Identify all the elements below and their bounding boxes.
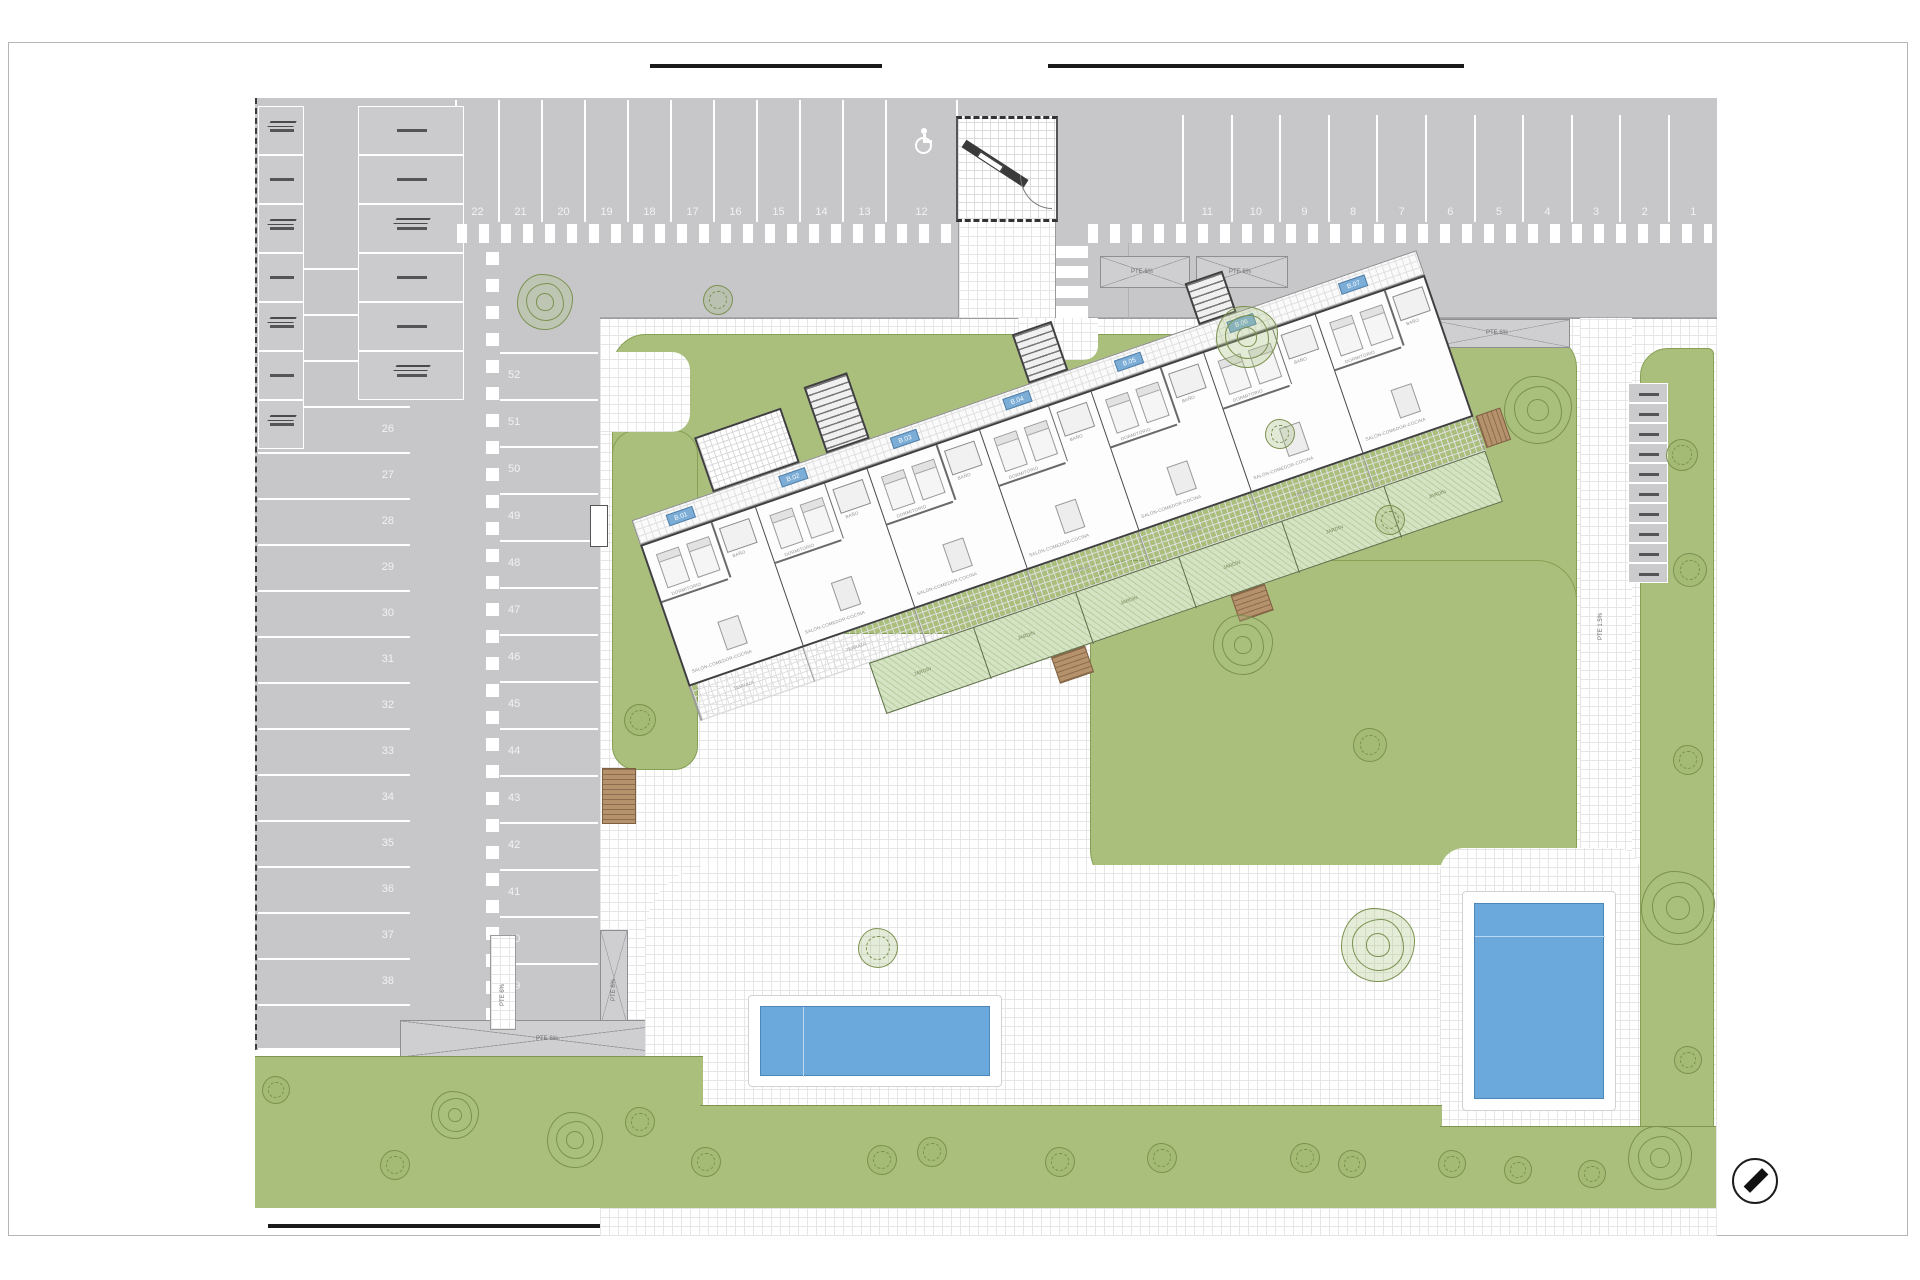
parking-space-number: 43: [508, 792, 520, 804]
bike-rack-icon: [270, 325, 294, 328]
moto-icon: [267, 415, 296, 421]
bike-rack-icon: [270, 423, 294, 426]
parking-space: 21: [498, 100, 541, 222]
bike-rack-icon: [397, 325, 427, 328]
bike-stall-east: [1628, 443, 1668, 463]
parking-space: 30: [258, 590, 410, 636]
bed-icon: [1330, 315, 1364, 357]
bathroom: [719, 518, 758, 553]
bike-rack-icon: [1639, 513, 1659, 516]
parking-space-number: 42: [508, 839, 520, 851]
parking-space: 35: [258, 820, 410, 866]
parking-space: 43: [500, 775, 598, 822]
bathroom: [1168, 363, 1207, 398]
parking-space-number: 50: [508, 463, 520, 475]
bike-stall: [258, 400, 304, 449]
road-marking-dashes: [1088, 224, 1712, 243]
bike-rack-icon: [1639, 413, 1659, 416]
parking-space-number: 21: [500, 206, 541, 218]
wheelchair-icon-part: [915, 137, 932, 154]
moto-icon: [393, 218, 430, 224]
garden-label: JARDÍN: [1428, 489, 1447, 501]
bike-rack-icon: [1639, 393, 1659, 396]
stairs-west: [602, 768, 636, 824]
bush: [1504, 1156, 1532, 1184]
boundary-line: [650, 64, 882, 68]
bush: [1578, 1160, 1606, 1188]
parking-space-number: 17: [672, 206, 713, 218]
parking-space-number: 11: [1184, 206, 1231, 218]
courtyard-door: [590, 505, 608, 547]
bed-icon: [799, 497, 833, 539]
moto-icon: [393, 365, 430, 371]
parking-space-number: 33: [382, 745, 394, 757]
bush: [867, 1145, 897, 1175]
moto-icon: [267, 317, 296, 323]
parking-space-number: 2: [1621, 206, 1668, 218]
parking-space-number: 8: [1330, 206, 1377, 218]
bed-icon: [1023, 420, 1057, 462]
parking-space: 33: [258, 728, 410, 774]
parking-space: 46: [500, 634, 598, 681]
bike-stall: [258, 204, 304, 253]
parking-space-number: 7: [1378, 206, 1425, 218]
parking-space: 50: [500, 446, 598, 493]
parking-space-number: 4: [1524, 206, 1571, 218]
garden-label: JARDÍN: [1325, 524, 1344, 536]
parking-space: 42: [500, 822, 598, 869]
bike-rack-icon: [270, 276, 294, 279]
bush: [703, 285, 733, 315]
parking-space: 14: [799, 100, 842, 222]
parking-space-number: 10: [1233, 206, 1280, 218]
bush: [1438, 1150, 1466, 1178]
parking-space: 7: [1376, 115, 1425, 222]
parking-space: 45: [500, 681, 598, 728]
north-needle: [1744, 1168, 1769, 1193]
parking-space: 48: [500, 540, 598, 587]
bush: [380, 1150, 410, 1180]
parking-space-number: 19: [586, 206, 627, 218]
parking-space-number: 14: [801, 206, 842, 218]
parking-space-number: 37: [382, 929, 394, 941]
terrace-label: TERRAZA: [845, 641, 866, 653]
bed-icon: [769, 508, 803, 550]
path-right-vertical: [1580, 318, 1632, 878]
garden-label: JARDÍN: [1017, 630, 1036, 642]
bush: [1375, 505, 1405, 535]
path-entry-left: [600, 352, 690, 432]
dining-table-icon: [1391, 383, 1422, 419]
bed-icon: [993, 430, 1027, 472]
parking-space: 8: [1328, 115, 1377, 222]
bush: [1666, 439, 1698, 471]
parking-space-number: 18: [629, 206, 670, 218]
dining-table-icon: [1055, 499, 1086, 535]
parking-space: 32: [258, 682, 410, 728]
bike-stall: [258, 351, 304, 400]
bathroom: [944, 440, 983, 475]
parking-space-number: 35: [382, 837, 394, 849]
bed-icon: [686, 536, 720, 578]
parking-space-number: 1: [1670, 206, 1717, 218]
terrace-label: TERRAZA: [733, 680, 754, 692]
terrace-label: TERRAZA: [1294, 487, 1315, 499]
moto-stall: [358, 155, 464, 204]
moto-stall: [358, 106, 464, 155]
parking-space-number: 3: [1573, 206, 1620, 218]
parking-space: 36: [258, 866, 410, 912]
bike-rack-icon: [1639, 573, 1659, 576]
bike-stall: [258, 155, 304, 204]
garden-label: JARDÍN: [1222, 560, 1241, 572]
parking-space: 38: [258, 958, 410, 1004]
parking-space: 16: [713, 100, 756, 222]
bike-rack-icon: [1639, 553, 1659, 556]
garden-label: JARDÍN: [913, 666, 932, 678]
parking-space-number: 28: [382, 515, 394, 527]
parking-space-number: 48: [508, 557, 520, 569]
ramp-label: PTE 6%: [1486, 330, 1508, 336]
ramp-label: PTE 6%: [500, 984, 506, 1006]
parking-space-number: 41: [508, 886, 520, 898]
parking-space-number: 30: [382, 607, 394, 619]
bush: [1290, 1143, 1320, 1173]
wheelchair-icon: [913, 128, 935, 154]
parking-space: 9: [1279, 115, 1328, 222]
bike-stall: [258, 253, 304, 302]
bike-rack-icon: [397, 276, 427, 279]
bike-stall-east: [1628, 523, 1668, 543]
bed-icon: [911, 459, 945, 501]
parking-space-number: 16: [715, 206, 756, 218]
bush: [1674, 1046, 1702, 1074]
bike-rack-icon: [1639, 433, 1659, 436]
garden-label: JARDÍN: [1120, 595, 1139, 607]
bike-rack-icon: [1639, 493, 1659, 496]
ramp-label: PTE 6%: [1229, 269, 1251, 275]
swimming-pool-left: [760, 1006, 990, 1076]
gate-barrier-arm: [962, 140, 1029, 188]
bike-rack-icon: [1639, 533, 1659, 536]
parking-space-number: 15: [758, 206, 799, 218]
bush: [625, 1107, 655, 1137]
bike-rack-icon: [397, 227, 427, 230]
parking-space: 28: [258, 498, 410, 544]
bathroom: [1280, 325, 1319, 360]
moto-stall: [358, 204, 464, 253]
bathroom: [1056, 402, 1095, 437]
parking-space-number: 5: [1476, 206, 1523, 218]
boundary-line: [1048, 64, 1464, 68]
bed-icon: [1136, 381, 1170, 423]
parking-space-number: 38: [382, 975, 394, 987]
dining-table-icon: [942, 537, 973, 573]
parking-space: 4: [1522, 115, 1571, 222]
bike-stall-east: [1628, 383, 1668, 403]
parking-space: 1: [1668, 115, 1717, 222]
pool-lane-line: [803, 1007, 804, 1077]
parking-space: 34: [258, 774, 410, 820]
ramp-east-b: PTE 6%: [1430, 319, 1570, 348]
boundary-line: [268, 1224, 636, 1228]
parking-space-number: 51: [508, 416, 520, 428]
parking-space-number: 9: [1281, 206, 1328, 218]
bush: [1338, 1150, 1366, 1178]
parking-space: 17: [670, 100, 713, 222]
parking-space: 6: [1425, 115, 1474, 222]
bush: [917, 1137, 947, 1167]
pedestrian-ramp-west: PTE 6%: [490, 935, 516, 1030]
bike-stall-east: [1628, 563, 1668, 583]
terrace-label: TERRAZA: [1406, 448, 1427, 460]
parking-space: 13: [842, 100, 885, 222]
parking-space-number: 12: [887, 206, 956, 218]
bush: [1045, 1147, 1075, 1177]
bush: [1353, 728, 1387, 762]
parking-space-number: 52: [508, 369, 520, 381]
bush: [262, 1076, 290, 1104]
path-slope-label: PTE 1.5%: [1598, 613, 1604, 640]
moto-stall: [358, 302, 464, 351]
bike-rack-icon: [270, 129, 294, 132]
bush: [624, 704, 656, 736]
accessible-parking-space: 12: [885, 100, 958, 222]
aisle-dashed-line: [486, 252, 499, 1020]
bed-icon: [656, 547, 690, 589]
site-plan-canvas: 2221201918171615141312111098765432123242…: [0, 0, 1920, 1280]
parking-space: 19: [584, 100, 627, 222]
bike-rack-icon: [270, 227, 294, 230]
moto-icon: [267, 121, 296, 127]
parking-space: 15: [756, 100, 799, 222]
parking-space-number: 20: [543, 206, 584, 218]
parking-space-number: 44: [508, 745, 520, 757]
bike-stall-east: [1628, 483, 1668, 503]
dining-table-icon: [1167, 460, 1198, 496]
bathroom: [832, 479, 871, 514]
bush: [1265, 419, 1295, 449]
bike-rack-icon: [397, 178, 427, 181]
parking-space: 47: [500, 587, 598, 634]
parking-space-number: 32: [382, 699, 394, 711]
parking-space-number: 27: [382, 469, 394, 481]
parking-space-number: 6: [1427, 206, 1474, 218]
bathroom: [1393, 286, 1432, 321]
parking-space-number: 47: [508, 604, 520, 616]
gate-path: [958, 222, 1056, 318]
terrace-label: TERRAZA: [1182, 525, 1203, 537]
bed-icon: [881, 469, 915, 511]
parking-space-number: 31: [382, 653, 394, 665]
parking-space: 27: [258, 452, 410, 498]
bike-stall: [258, 302, 304, 351]
moto-icon: [267, 219, 296, 225]
parking-space-number: 45: [508, 698, 520, 710]
ramp-label: PTE 6%: [536, 1036, 558, 1042]
entrance-gate: [956, 116, 1058, 222]
road-marking-dashes: [457, 224, 1036, 243]
moto-stall: [358, 253, 464, 302]
bike-rack-icon: [270, 374, 294, 377]
bike-stall: [258, 106, 304, 155]
terrace-label: TERRAZA: [1069, 564, 1090, 576]
bike-stall-east: [1628, 503, 1668, 523]
parking-space: 5: [1474, 115, 1523, 222]
bike-rack-icon: [397, 129, 427, 132]
parking-space: 2: [1619, 115, 1668, 222]
parking-space: 3: [1571, 115, 1620, 222]
swimming-pool-right: [1474, 903, 1604, 1099]
bush: [1673, 553, 1707, 587]
ramp-south-vertical: PTE 6%: [600, 930, 628, 1025]
bed-icon: [1105, 392, 1139, 434]
parking-space-number: 29: [382, 561, 394, 573]
moto-stall: [358, 351, 464, 400]
parking-space-number: 46: [508, 651, 520, 663]
parking-space-number: 34: [382, 791, 394, 803]
parking-space: 52: [500, 352, 598, 399]
parking-space-number: 49: [508, 510, 520, 522]
ramp-road-a: PTE 6%: [1100, 256, 1190, 288]
terrace-label: TERRAZA: [957, 602, 978, 614]
parking-space-number: 36: [382, 883, 394, 895]
dining-table-icon: [830, 576, 861, 612]
bush: [858, 928, 898, 968]
parking-space: 49: [500, 493, 598, 540]
bike-rack-icon: [270, 178, 294, 181]
bed-icon: [1360, 304, 1394, 346]
bike-rack-icon: [1639, 453, 1659, 456]
parking-space-number: 26: [382, 423, 394, 435]
parking-space: 20: [541, 100, 584, 222]
bush: [691, 1147, 721, 1177]
parking-space: 11: [1182, 115, 1231, 222]
parking-space: 10: [1231, 115, 1280, 222]
parking-space: 51: [500, 399, 598, 446]
bike-rack-icon: [397, 374, 427, 377]
pool-lane-line: [1475, 936, 1605, 937]
parking-space: 44: [500, 728, 598, 775]
bike-stall-east: [1628, 403, 1668, 423]
parking-space: 37: [258, 912, 410, 958]
bike-stall-east: [1628, 423, 1668, 443]
bike-rack-icon: [1639, 473, 1659, 476]
parking-space: [258, 1004, 410, 1050]
parking-space-number: 13: [844, 206, 885, 218]
bike-stall-east: [1628, 463, 1668, 483]
parking-space: 41: [500, 869, 598, 916]
parking-space: 29: [258, 544, 410, 590]
bush: [1147, 1143, 1177, 1173]
bike-stall-east: [1628, 543, 1668, 563]
ramp-label: PTE 6%: [1131, 269, 1153, 275]
gate-swing-arc: [1020, 175, 1052, 209]
ramp-label: PTE 6%: [611, 979, 617, 1001]
parking-space: 31: [258, 636, 410, 682]
parking-space: 18: [627, 100, 670, 222]
dining-table-icon: [717, 615, 748, 651]
bush: [1673, 745, 1703, 775]
north-arrow-compass: [1732, 1158, 1778, 1204]
